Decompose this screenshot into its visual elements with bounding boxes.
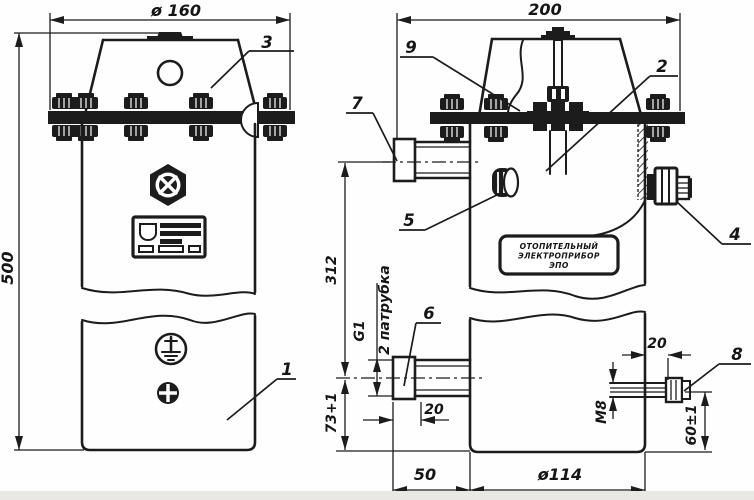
drain-bolt — [610, 378, 690, 402]
hex-plug-icon — [150, 164, 186, 206]
part-label-5: 5 — [399, 193, 501, 230]
plug-fitting — [492, 168, 518, 197]
dim-text-g1: G1 — [352, 320, 368, 341]
break-line — [470, 285, 645, 299]
rating-plate-icon — [133, 217, 205, 257]
technical-drawing: ø 160 500 3 1 — [0, 0, 754, 500]
nameplate-line3: ЭПО — [549, 261, 569, 270]
dim-text-50: 50 — [414, 465, 436, 484]
nameplate-line1: ОТОПИТЕЛЬНЫЙ — [520, 242, 599, 251]
gland-nut — [527, 86, 589, 131]
dim-text-m8: M8 — [594, 400, 610, 424]
dim-body-diameter: ø114 — [470, 452, 645, 496]
nameplate-line2: ЭЛЕКТРОПРИБОР — [518, 252, 600, 261]
left-view: ø 160 500 3 1 — [0, 1, 296, 450]
thermostat-rod — [527, 27, 589, 174]
page-edge-strip — [0, 491, 754, 500]
dim-text-20-pipe: 20 — [424, 402, 444, 418]
dim-text-114: ø114 — [537, 465, 582, 484]
cap-front — [86, 32, 256, 110]
dim-text-20-bolt: 20 — [647, 336, 667, 352]
part-label-4: 4 — [676, 201, 751, 244]
nameplate: ОТОПИТЕЛЬНЫЙ ЭЛЕКТРОПРИБОР ЭПО — [500, 236, 618, 274]
break-line — [470, 311, 645, 321]
part-label-8: 8 — [684, 345, 751, 391]
dim-text-500: 500 — [0, 251, 17, 284]
svg-text:3: 3 — [261, 33, 272, 52]
union-fitting — [647, 168, 691, 204]
right-view: ОТОПИТЕЛЬНЫЙ ЭЛЕКТРОПРИБОР ЭПО 200 312 7… — [324, 0, 751, 496]
break-line — [82, 313, 255, 323]
dim-text-73: 73+1 — [324, 393, 340, 434]
screw-icon — [157, 382, 179, 404]
dim-pipe-stub-length: 50 — [393, 452, 470, 496]
part-label-7: 7 — [346, 94, 397, 161]
dim-text-pipe-note: 2 патрубка — [377, 265, 393, 355]
svg-text:4: 4 — [728, 225, 740, 244]
section-break-line — [508, 40, 523, 122]
flange-front — [48, 93, 295, 141]
dim-text-312: 312 — [324, 255, 340, 284]
dim-text-200: 200 — [528, 0, 561, 19]
part-label-1: 1 — [227, 360, 296, 420]
svg-text:8: 8 — [731, 345, 742, 364]
svg-text:7: 7 — [351, 94, 363, 113]
ground-icon — [156, 334, 186, 364]
dim-bolt-length: 20 — [622, 336, 691, 380]
drawing-page: ø 160 500 3 1 — [0, 0, 754, 500]
svg-text:2: 2 — [656, 57, 667, 76]
svg-text:1: 1 — [281, 360, 292, 379]
svg-text:9: 9 — [405, 38, 416, 57]
svg-text:6: 6 — [423, 304, 434, 323]
wall-section-hatch — [590, 124, 648, 236]
dim-text-160: ø 160 — [150, 1, 201, 20]
dim-text-60: 60±1 — [684, 405, 700, 446]
dim-pipe-thread: G1 2 патрубка — [352, 265, 393, 396]
dim-bolt-thread: M8 — [594, 362, 613, 424]
break-line — [82, 288, 255, 296]
svg-text:5: 5 — [403, 211, 414, 230]
